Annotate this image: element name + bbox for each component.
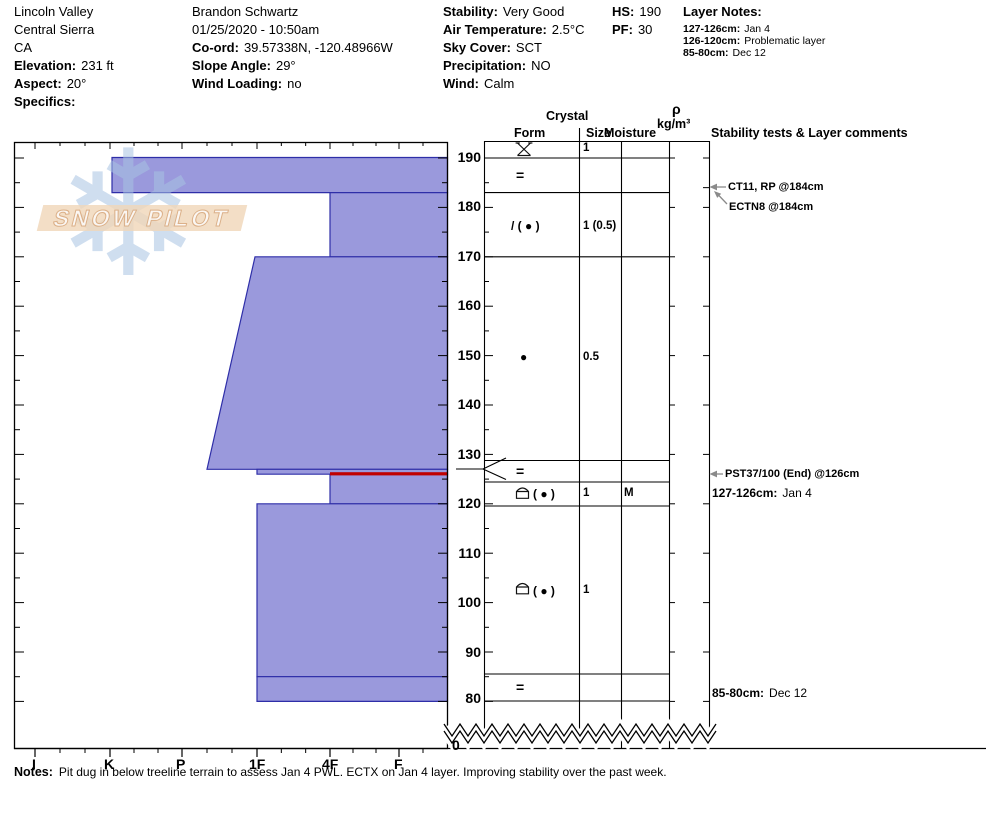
precipitation-value: NO (531, 58, 551, 73)
grain-form: / ( ● ) (511, 219, 540, 233)
layer-note-entry: 85-80cm:Dec 12 (683, 47, 766, 59)
stability-label: Stability: (443, 4, 498, 19)
moisture-header: Moisture (604, 126, 656, 140)
air-temp-value: 2.5°C (552, 22, 585, 37)
layer-note-text: Jan 4 (744, 23, 770, 35)
site-name: Lincoln Valley (14, 4, 93, 19)
aspect-field: Aspect:20° (14, 76, 86, 91)
rho-header: ρ (672, 101, 681, 117)
ice-lens-symbol: = (516, 679, 524, 695)
notes-line: Notes:Pit dug in below treeline terrain … (14, 765, 667, 779)
depth-label-120: 120 (447, 495, 481, 511)
pf-field: PF:30 (612, 22, 652, 37)
ice-lens-symbol: = (516, 463, 524, 479)
grain-form-suffix: ( ● ) (533, 584, 555, 598)
air-temp-field: Air Temperature:2.5°C (443, 22, 584, 37)
layer-comment-range: 85-80cm: (712, 686, 764, 700)
grain-size: 1 (583, 584, 589, 596)
elevation-label: Elevation: (14, 58, 76, 73)
moisture-value: M (624, 487, 634, 499)
pf-value: 30 (638, 22, 652, 37)
layer-comment: 85-80cm:Dec 12 (712, 686, 807, 700)
coord-field: Co-ord:39.57338N, -120.48966W (192, 40, 393, 55)
precipitation-label: Precipitation: (443, 58, 526, 73)
rho-units: kg/m³ (657, 117, 690, 131)
sky-cover-value: SCT (516, 40, 542, 55)
grain-size: 1 (0.5) (583, 220, 616, 232)
grain-size: 1 (583, 487, 589, 499)
depth-label-80: 80 (447, 690, 481, 706)
air-temp-label: Air Temperature: (443, 22, 547, 37)
depth-label-160: 160 (447, 297, 481, 313)
text-layer: Lincoln Valley Central Sierra CA Elevati… (0, 0, 994, 840)
hs-label: HS: (612, 4, 634, 19)
depth-label-110: 110 (447, 545, 481, 561)
test-annotation-ectn: ECTN8 @184cm (729, 201, 813, 213)
ground-label: 0 (452, 737, 460, 753)
elevation-field: Elevation:231 ft (14, 58, 114, 73)
specifics-field: Specifics: (14, 94, 80, 109)
layer-comment-range: 127-126cm: (712, 486, 777, 500)
form-header: Form (514, 126, 545, 140)
site-region: Central Sierra (14, 22, 94, 37)
pf-label: PF: (612, 22, 633, 37)
depth-label-100: 100 (447, 594, 481, 610)
layer-comment-text: Jan 4 (782, 486, 811, 500)
ice-lens-symbol: = (516, 167, 524, 183)
slope-angle-label: Slope Angle: (192, 58, 271, 73)
grain-form: ● (520, 350, 527, 364)
coord-label: Co-ord: (192, 40, 239, 55)
test-annotation-pst: PST37/100 (End) @126cm (725, 468, 859, 480)
depth-label-130: 130 (447, 446, 481, 462)
snowpilot-profile-page: ❄ SNOW PILOT Lincoln Valley Central Sier… (0, 0, 994, 840)
depth-label-170: 170 (447, 248, 481, 264)
notes-text: Pit dug in below treeline terrain to ass… (59, 765, 667, 779)
grain-form-suffix: ( ● ) (533, 487, 555, 501)
wind-field: Wind:Calm (443, 76, 514, 91)
sky-cover-label: Sky Cover: (443, 40, 511, 55)
precipitation-field: Precipitation:NO (443, 58, 551, 73)
observer-name: Brandon Schwartz (192, 4, 298, 19)
layer-note-text: Problematic layer (744, 35, 825, 47)
aspect-label: Aspect: (14, 76, 62, 91)
site-state: CA (14, 40, 32, 55)
wind-value: Calm (484, 76, 514, 91)
depth-label-180: 180 (447, 198, 481, 214)
stability-field: Stability:Very Good (443, 4, 564, 19)
notes-label: Notes: (14, 765, 53, 779)
depth-label-90: 90 (447, 644, 481, 660)
elevation-value: 231 ft (81, 58, 114, 73)
sky-cover-field: Sky Cover:SCT (443, 40, 542, 55)
wind-loading-label: Wind Loading: (192, 76, 282, 91)
comments-header: Stability tests & Layer comments (711, 126, 908, 140)
depth-label-140: 140 (447, 396, 481, 412)
wind-loading-value: no (287, 76, 301, 91)
hs-field: HS:190 (612, 4, 661, 19)
hs-value: 190 (639, 4, 661, 19)
layer-notes-title: Layer Notes: (683, 4, 762, 19)
layer-note-entry: 126-120cm:Problematic layer (683, 35, 825, 47)
test-annotation-ct: CT11, RP @184cm (728, 181, 824, 193)
depth-label-190: 190 (447, 149, 481, 165)
wind-label: Wind: (443, 76, 479, 91)
grain-size: 0.5 (583, 351, 599, 363)
layer-note-text: Dec 12 (733, 47, 766, 59)
layer-note-range: 85-80cm: (683, 47, 729, 59)
layer-comment-text: Dec 12 (769, 686, 807, 700)
slope-angle-value: 29° (276, 58, 296, 73)
layer-comment: 127-126cm:Jan 4 (712, 486, 812, 500)
layer-note-entry: 127-126cm:Jan 4 (683, 23, 770, 35)
pit-datetime: 01/25/2020 - 10:50am (192, 22, 319, 37)
aspect-value: 20° (67, 76, 87, 91)
layer-note-range: 127-126cm: (683, 23, 740, 35)
stability-value: Very Good (503, 4, 564, 19)
wind-loading-field: Wind Loading:no (192, 76, 302, 91)
coord-value: 39.57338N, -120.48966W (244, 40, 393, 55)
depth-label-150: 150 (447, 347, 481, 363)
grain-size: 1 (583, 142, 589, 154)
crystal-header: Crystal (546, 109, 588, 123)
slope-angle-field: Slope Angle:29° (192, 58, 296, 73)
layer-note-range: 126-120cm: (683, 35, 740, 47)
specifics-label: Specifics: (14, 94, 75, 109)
